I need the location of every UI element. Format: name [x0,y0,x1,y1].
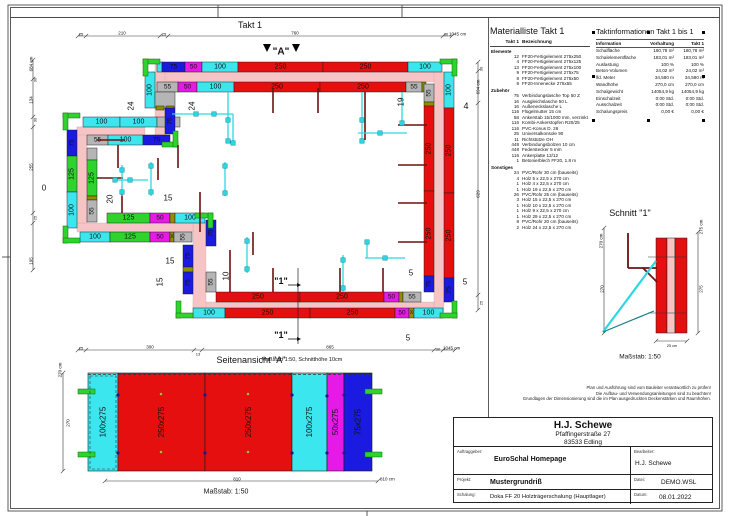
drawing-label: 270 [66,419,71,427]
drawing-label: 694 cm [476,79,481,94]
drawing-label: 15 [166,257,175,266]
panel-label: 50 [388,294,396,301]
drawing-label: 10 [222,271,231,280]
takt-info-cell: 180,78 m² [674,48,704,55]
takt-info-cell: 183,01 m² [674,55,704,62]
takt-info-cell: 0:00 Std. [674,96,704,103]
side-view: 100x275250x275250x275100x27550x27575x275 [78,373,382,471]
drawing-label: "1" [274,276,288,286]
company-street: Pfaffingerstraße 27 [454,431,712,439]
takt-info-cell: 0:00 Std. [674,102,704,109]
material-list-rows: Elemente12FF20-Fertigelement 275x2504FF2… [490,49,590,230]
takt-info-cell: lfd. Meter [596,75,638,82]
date-cell: Datum: 08.01.2022 [631,490,712,504]
drawing-label: 5 [409,269,414,278]
takt-info-cell: 0:00 Std. [638,96,674,103]
file-cell: Datei: DEMO.WSL [631,475,712,489]
drawing-label: 210 [118,31,126,36]
drawing-label: 300 [146,345,154,350]
panel-label: 100 [214,64,226,71]
drawing-sheet: 7550100250250100555010025025055100250250… [0,0,730,516]
panel-label: 100 [184,215,196,222]
drawing-label: Maßstab 1:50, Schnitthöhe 10cm [262,357,343,363]
takt-info-cell: 180,78 m² [638,48,674,55]
takt-info-cell: Einschalzeit [596,96,638,103]
takt-info-row: lfd. Meter34,580 m34,580 m [596,75,704,82]
title-block: H.J. Schewe Pfaffingerstraße 27 83533 Ed… [453,417,713,503]
panel-label: 100 [89,234,101,241]
panel-label: 125 [123,215,135,222]
editor-cell: Bearbeiter: H.J. Schewe [631,447,712,474]
material-row-count: 8 [497,81,519,86]
takt-info-cell: 0:00 Std. [638,102,674,109]
takt-info-cell: 0,00 € [674,109,704,116]
panel-label: 250 [275,64,287,71]
takt-info-cell: 0,00 € [638,109,674,116]
material-list-col-takt: Takt 1 [497,40,519,45]
takt-info-cell: 14054,9 kg [674,89,704,96]
drawing-label: 15 [164,194,173,203]
side-panel-label: 100x275 [305,406,314,437]
takt-info-row: Schalfläche180,78 m²180,78 m² [596,48,704,55]
panel-label: 250 [426,143,433,155]
panel-label: 125 [69,168,76,180]
panel-label: 250 [446,230,453,242]
takt-info-cell: 100 % [638,62,674,69]
drawing-label: 134 [29,96,34,104]
formwork-cell: Schalung: Doka FF 20 Holzträgerschalung … [454,490,631,504]
takt-info-row: Schalgewicht14054,9 kg14054,9 kg [596,89,704,96]
material-row-name: Holz 24 x 22,5 x 270 cm [522,225,571,230]
panel-label: 250 [360,64,372,71]
panel-label: 55 [164,84,172,91]
panel-label: 55 [408,294,416,301]
panel-label: 125 [89,172,96,184]
panel-label: 50 [156,215,164,222]
drawing-label: 810 [233,477,241,482]
takt-info-row: Beton-Volumen24,02 m³24,02 m³ [596,68,704,75]
drawing-label: Maßstab: 1:50 [619,354,661,361]
takt-info-row: Schalelementfläche183,01 m²183,01 m² [596,55,704,62]
disclaimer-line: Grundlagen der Dimensionierung sind die … [411,396,711,402]
drawing-label: 270 [600,285,605,293]
material-row-name: Betonierblech FF20, 1.8 m [522,158,576,163]
drawing-label: Maßstab: 1:50 [204,489,249,496]
panel-label: 250 [426,228,433,240]
panel-label: 250 [357,84,369,91]
material-row: 1Betonierblech FF20, 1.8 m [497,158,590,163]
drawing-label: "1" [274,330,288,340]
drawing-label: 255 [29,163,34,171]
drawing-label: 25 [79,32,84,37]
company-city: 83533 Edling [454,439,712,447]
side-panel-label: 50x275 [331,408,340,435]
material-list-header: Takt 1 Bezeichnung [490,40,590,47]
client-cell: Auftraggeber: EuroSchal Homepage [454,447,631,474]
selection-handle[interactable] [592,31,595,34]
panel-label: 100 [423,310,435,317]
panel-label: 250 [347,310,359,317]
panel-label: 50 [190,64,198,71]
drawing-label: 0 [42,184,47,193]
client-value: EuroSchal Homepage [494,456,566,463]
drawing-label: 865 [326,345,334,350]
side-panel-label: 100x275 [99,406,108,437]
panel-label: 55 [208,278,215,286]
drawing-label: 760 [291,31,299,36]
panel-label: 125 [124,234,136,241]
material-row-count: 2 [497,225,519,230]
material-row-count: 1 [497,158,519,163]
file-value: DEMO.WSL [661,479,696,486]
takt-info-cell: 34,580 m [674,75,704,82]
drawing-label: 25 [79,346,84,351]
panel-label: 100 [446,84,453,96]
takt-info-cell: 100 % [674,62,704,69]
selection-handle[interactable] [702,75,705,78]
drawing-label: 270 cm [58,362,63,377]
selection-handle[interactable] [702,119,705,122]
file-label: Datei: [634,477,645,482]
takt-info-cell: Ausschalzeit [596,102,638,109]
panel-label: 55 [410,84,418,91]
drawing-label: 1045 cm [443,346,461,351]
panel-label: 75 [426,280,433,288]
drawing-label: 275 [699,285,704,293]
selection-handle[interactable] [592,119,595,122]
drawing-label: 30 [33,77,38,82]
takt-info-row: Schalungspreis0,00 €0,00 € [596,109,704,116]
panel-label: 75 [185,279,192,287]
panel-label: 100 [96,119,108,126]
panel-label: 250 [252,294,264,301]
takt-info-cell: Wandhöhe [596,82,638,89]
selection-handle[interactable] [592,75,595,78]
takt-info-rows: Schalfläche180,78 m²180,78 m²Schalelemen… [596,48,704,116]
drawing-label: 24 [127,101,136,110]
takt-info-cell: 34,580 m [638,75,674,82]
material-list-col-bezeichnung: Bezeichnung [522,40,552,45]
takt-info-col-takt1: Takt 1 [674,41,704,46]
drawing-label: 24 [188,101,197,110]
panel-label: 100 [147,84,154,96]
drawing-label: 19 [397,97,406,106]
takt-info-cell: Schalgewicht [596,89,638,96]
material-list: Materialliste Takt 1 Takt 1 Bezeichnung … [490,26,590,230]
drawing-label: 25 [33,215,38,220]
panel-label: 50 [184,84,192,91]
takt-info-cell: 183,01 m² [638,55,674,62]
panel-label: 75 [208,229,215,237]
panel-label: 100 [419,64,431,71]
drawing-label: 1045 cm [449,32,467,37]
date-value: 08.01.2022 [659,494,692,501]
company-name: H.J. Schewe [454,420,712,431]
editor-label: Bearbeiter: [634,449,654,454]
drawing-label: 629 [476,190,481,198]
panel-label: 55 [426,89,433,97]
takt-info-col-vorhaltung: Vorhaltung [638,41,674,46]
panel-label: 250 [262,310,274,317]
drawing-label: 4 [463,101,468,111]
panel-label: 75 [167,117,174,125]
schnitt-view [603,233,687,333]
side-panel-label: 250x275 [244,406,253,437]
takt-info-row: Ausschalzeit0:00 Std.0:00 Std. [596,102,704,109]
takt-info-cell: 24,02 m³ [674,68,704,75]
panel-label: 100 [203,310,215,317]
title-block-company-cell: H.J. Schewe Pfaffingerstraße 27 83533 Ed… [454,418,712,447]
drawing-label: 25 cm [667,344,677,348]
drawing-label: 25 [162,32,167,37]
drawing-label: 684 cm [29,56,34,71]
project-cell: Projekt: Mustergrundriß [454,475,631,489]
drawing-label: 5 [406,334,411,343]
takt-info-cell: Auslastung [596,62,638,69]
drawing-label: 30 [479,66,484,71]
date-label: Datum: [634,492,648,497]
takt-info-cell: 14054,9 kg [638,89,674,96]
takt-info-cell: 270,0 cm [638,82,674,89]
takt-info-cell: Beton-Volumen [596,68,638,75]
drawing-label: 810 cm [380,477,395,482]
takt-info-header: Information Vorhaltung Takt 1 [596,39,704,48]
panel-label: 50 [398,310,406,317]
selection-handle[interactable] [702,31,705,34]
project-value: Mustergrundriß [490,479,542,486]
drawing-label: 25 [479,300,484,305]
takt-info-row: Einschalzeit0:00 Std.0:00 Std. [596,96,704,103]
disclaimer-text: Plan und Ausführung sind vom Bauleiter v… [411,385,711,402]
panel-label: 100 [69,204,76,216]
drawing-label: 13 [196,352,201,357]
drawing-label: 5 [463,278,468,287]
panel-label: 250 [336,294,348,301]
formwork-label: Schalung: [457,492,476,497]
selection-handle[interactable] [647,119,650,122]
material-row: 2Holz 24 x 22,5 x 270 cm [497,225,590,230]
drawing-label: 195 [29,257,34,265]
material-row: 8FF20-Innenecke 275x55 [497,81,590,86]
panel-label: 75 [153,137,161,144]
drawing-label: 30 [436,347,441,352]
panel-label: 55 [89,207,96,215]
drawing-label: 15 [156,277,165,286]
panel-label: 75 [446,286,453,294]
drawing-label: 270 cm [599,233,604,248]
side-panel-label: 75x275 [354,408,363,435]
material-row-name: FF20-Innenecke 275x55 [522,81,572,86]
client-label: Auftraggeber: [457,449,482,454]
drawing-label: 275 cm [699,219,704,234]
project-label: Projekt: [457,477,471,482]
takt-info-col-information: Information [596,41,638,46]
takt-info-cell: Schalelementfläche [596,55,638,62]
drawing-label: 30 [33,117,38,122]
panel-label: 75 [69,139,76,147]
side-panel-label: 250x275 [157,406,166,437]
takt-info-row: Auslastung100 %100 % [596,62,704,69]
wall-cores [77,62,444,312]
panel-label: 50 [156,234,164,241]
takt-info-cell: 270,0 cm [674,82,704,89]
panel-label: 75 [185,252,192,260]
panel-label: 100 [133,119,145,126]
editor-value: H.J. Schewe [635,460,672,467]
takt-info-cell: Schalungspreis [596,109,638,116]
panel-label: 250 [446,145,453,157]
takt-info-cell: Schalfläche [596,48,638,55]
panel-label: 55 [180,233,187,241]
material-list-title: Materialliste Takt 1 [490,26,590,36]
drawing-label: 20 [106,194,115,203]
drawing-label: "A" [273,47,290,58]
selection-handle[interactable] [647,31,650,34]
formwork-value: Doka FF 20 Holzträgerschalung (Hauptlage… [490,494,606,500]
panel-label: 100 [210,84,222,91]
takt-info-panel: Taktinformationen Takt 1 bis 1 Informati… [596,27,704,116]
takt-info-row: Wandhöhe270,0 cm270,0 cm [596,82,704,89]
panel-label: 75 [170,64,178,71]
drawing-label: Schnitt "1" [609,208,650,218]
drawing-label: Takt 1 [238,20,262,30]
takt-info-cell: 24,02 m³ [638,68,674,75]
